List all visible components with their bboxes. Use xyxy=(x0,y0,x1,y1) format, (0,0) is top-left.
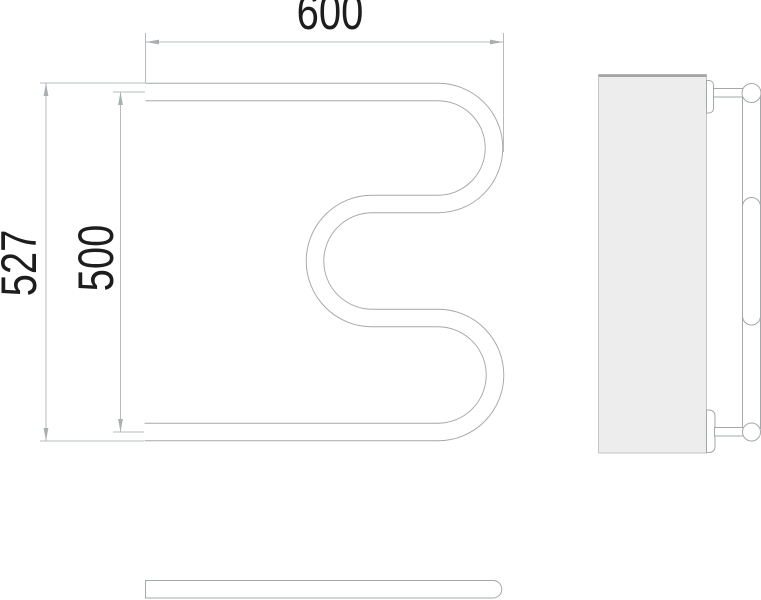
axis-height-dimension-label: 500 xyxy=(71,225,121,292)
top-view xyxy=(146,581,502,599)
overall-height-dimension-label: 527 xyxy=(0,230,44,297)
pipe-end-bottom xyxy=(743,423,761,441)
technical-drawing-canvas: 600 527 500 xyxy=(0,0,761,600)
wall-panel xyxy=(599,75,707,454)
arrowhead-top xyxy=(118,92,123,105)
width-dimension-label: 600 xyxy=(297,0,364,37)
arrowhead-bottom xyxy=(44,428,49,441)
side-tube-bend-upper xyxy=(743,198,761,207)
mounting-bracket-bottom xyxy=(707,410,716,453)
connector-pipe-bottom xyxy=(715,428,744,437)
drawing-linework xyxy=(0,0,761,600)
arrowhead-top xyxy=(44,83,49,96)
side-tube-bend-lower xyxy=(743,316,761,325)
arrowhead-right xyxy=(490,40,503,45)
arrowhead-left xyxy=(146,40,159,45)
arrowhead-bottom xyxy=(118,419,123,432)
connector-pipe-top xyxy=(714,89,744,98)
mounting-bracket-top xyxy=(707,81,714,114)
top-view-pipe xyxy=(146,581,502,599)
front-view xyxy=(145,92,496,432)
towel-rail-tube-body xyxy=(145,92,496,432)
side-view xyxy=(599,75,761,454)
pipe-end-top xyxy=(742,84,761,103)
